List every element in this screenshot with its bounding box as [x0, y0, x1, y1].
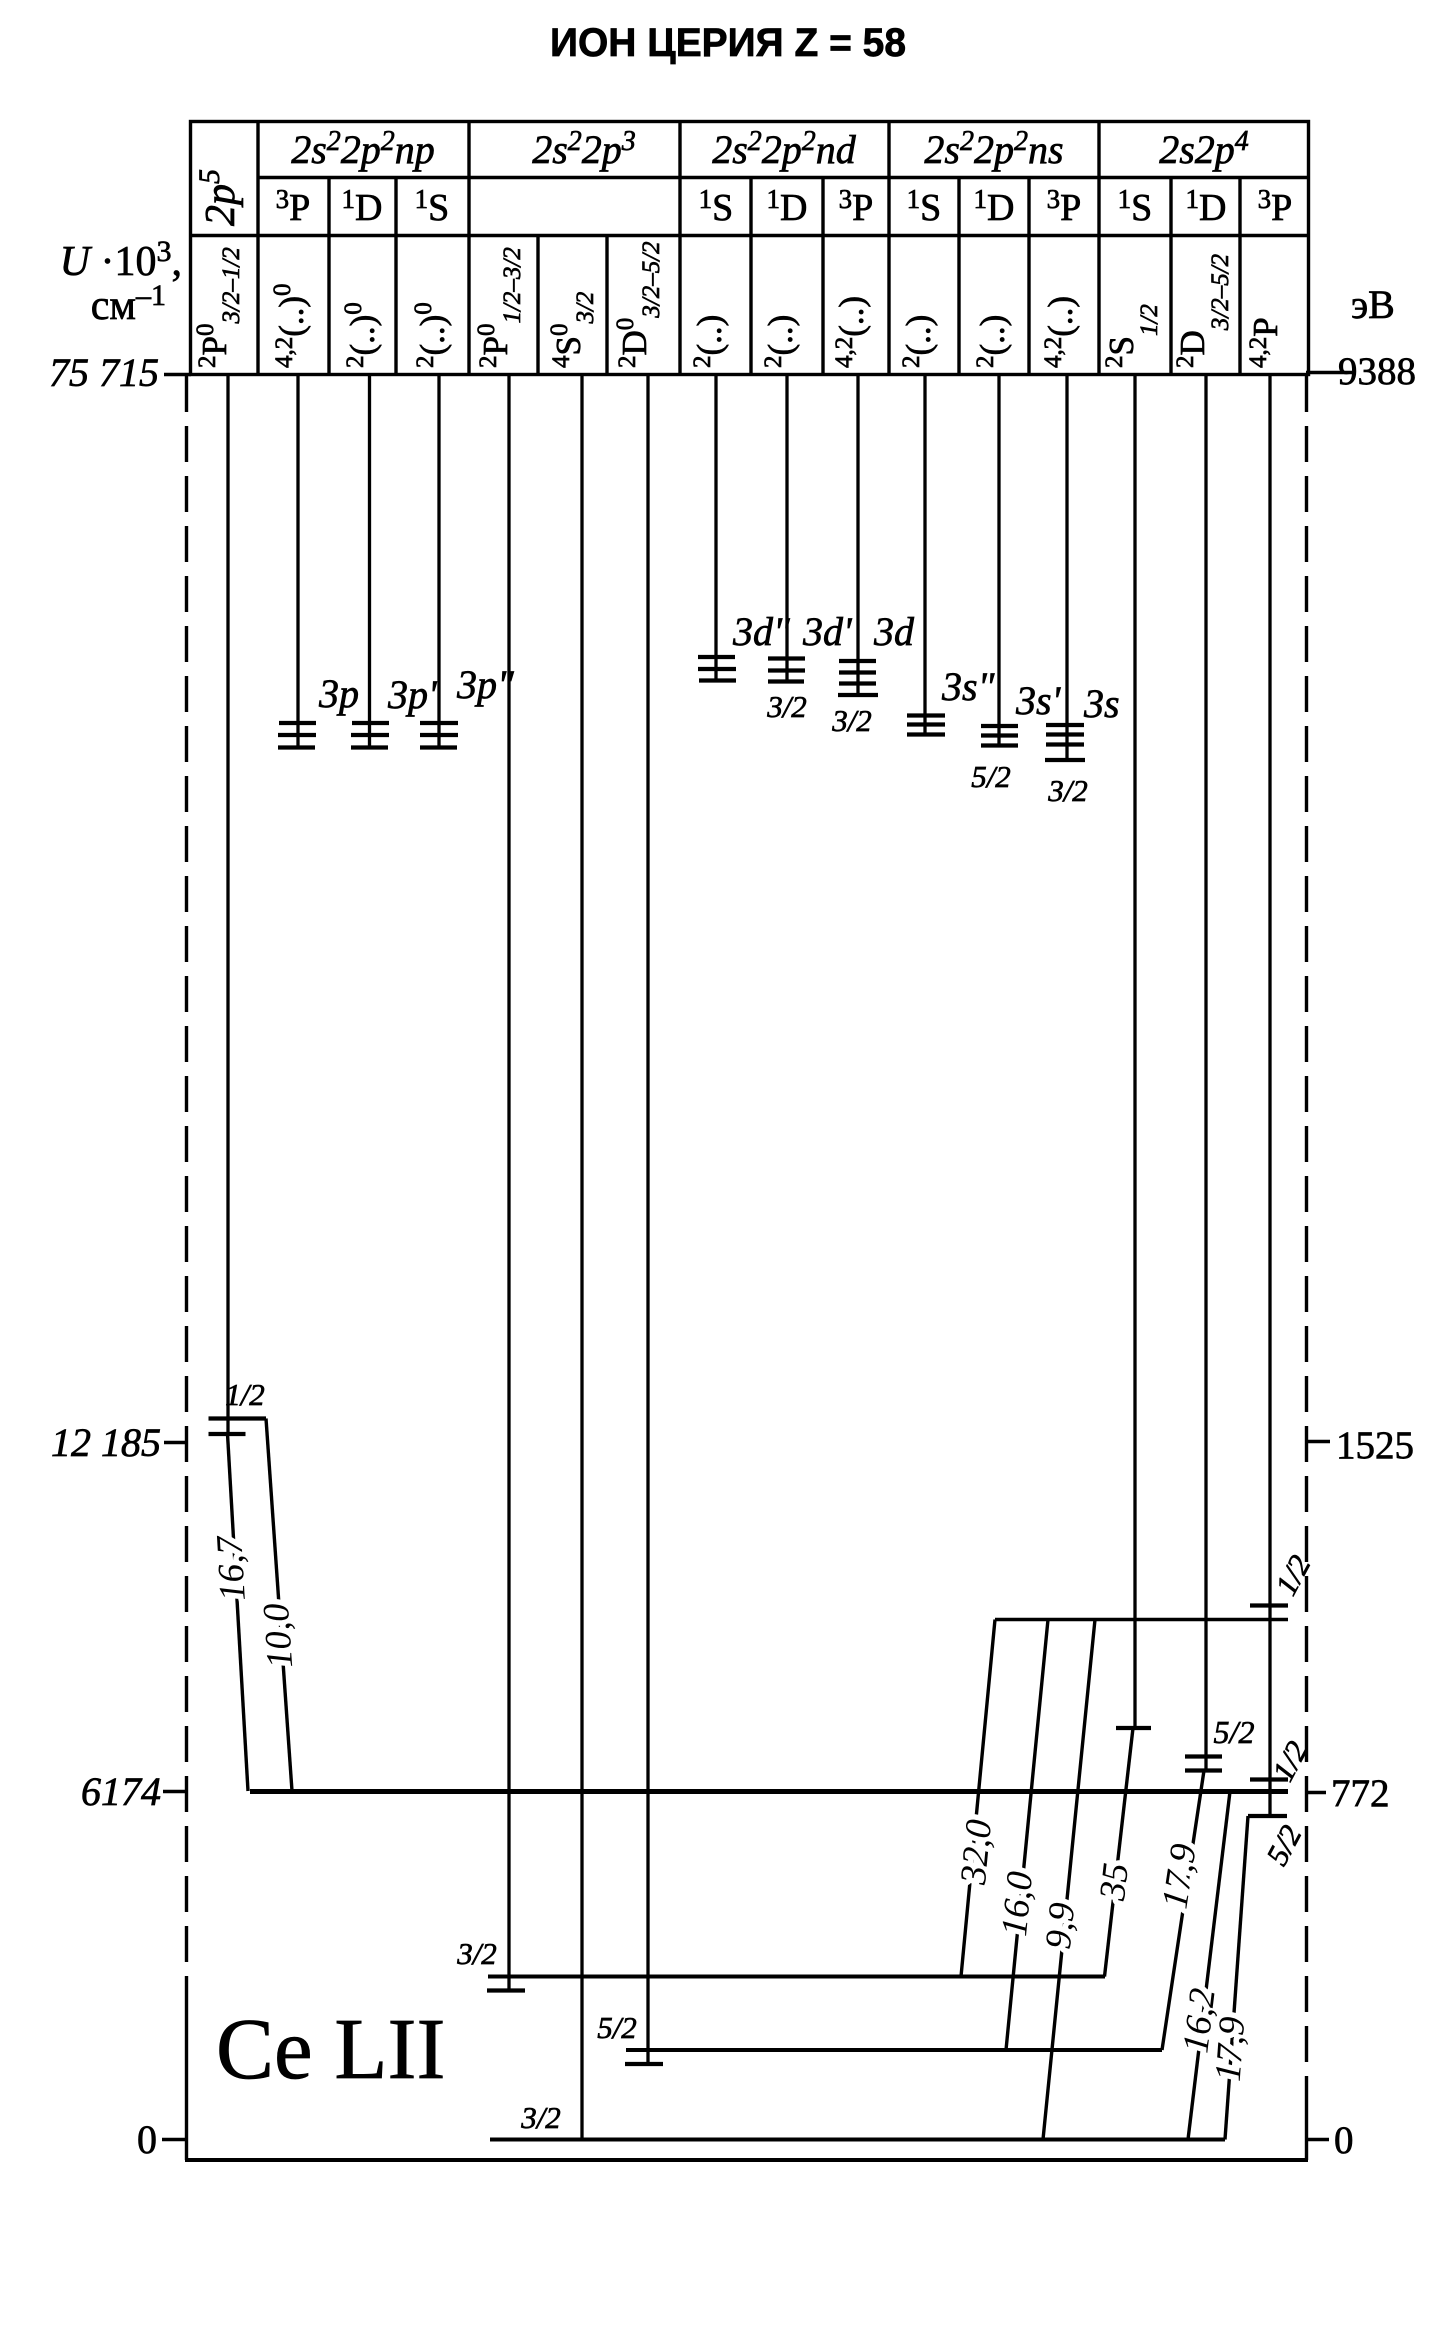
- svg-text:772: 772: [1331, 1772, 1390, 1815]
- svg-text:75 715: 75 715: [49, 350, 159, 395]
- svg-text:0: 0: [1334, 2119, 1354, 2162]
- svg-text:3d: 3d: [873, 609, 915, 654]
- svg-text:3p: 3p: [318, 671, 359, 716]
- svg-text:3s': 3s': [1015, 678, 1062, 723]
- svg-text:6174: 6174: [81, 1769, 161, 1814]
- svg-text:3/2: 3/2: [766, 689, 807, 724]
- svg-text:3/2: 3/2: [520, 2100, 561, 2135]
- svg-text:3s: 3s: [1083, 681, 1120, 726]
- svg-text:2s22p3: 2s22p3: [532, 126, 636, 172]
- svg-text:2s22p2ns: 2s22p2ns: [924, 126, 1063, 172]
- svg-text:16,7: 16,7: [209, 1534, 254, 1603]
- svg-text:Ce LII: Ce LII: [216, 2000, 445, 2097]
- svg-text:1/2: 1/2: [225, 1377, 265, 1412]
- svg-text:16,0: 16,0: [994, 1869, 1041, 1938]
- svg-text:12 185: 12 185: [51, 1420, 161, 1465]
- svg-text:3p': 3p': [387, 672, 438, 717]
- svg-text:3d": 3d": [732, 609, 790, 654]
- svg-text:3p": 3p": [456, 662, 514, 707]
- svg-text:5/2: 5/2: [1214, 1714, 1255, 1750]
- svg-text:5/2: 5/2: [971, 759, 1011, 794]
- svg-text:3d': 3d': [802, 609, 853, 654]
- svg-text:17,9: 17,9: [1208, 2015, 1254, 2083]
- svg-text:9,9: 9,9: [1038, 1901, 1083, 1951]
- svg-text:3/2: 3/2: [831, 703, 872, 738]
- svg-text:10,0: 10,0: [256, 1602, 301, 1670]
- svg-text:0: 0: [137, 2117, 157, 2162]
- svg-text:32,0: 32,0: [953, 1817, 1000, 1887]
- svg-text:эВ: эВ: [1351, 282, 1395, 327]
- svg-text:5/2: 5/2: [597, 2010, 637, 2045]
- svg-text:3/2: 3/2: [456, 1936, 497, 1971]
- svg-text:ИОН ЦЕРИЯ Z = 58: ИОН ЦЕРИЯ Z = 58: [550, 21, 906, 65]
- svg-text:3/2: 3/2: [1047, 773, 1088, 808]
- svg-text:9388: 9388: [1338, 350, 1416, 393]
- svg-text:2s22p2nd: 2s22p2nd: [712, 126, 857, 172]
- svg-text:2s22p2np: 2s22p2np: [291, 126, 435, 172]
- svg-text:3s": 3s": [941, 664, 995, 709]
- svg-text:35: 35: [1092, 1861, 1137, 1903]
- svg-text:1525: 1525: [1336, 1424, 1414, 1467]
